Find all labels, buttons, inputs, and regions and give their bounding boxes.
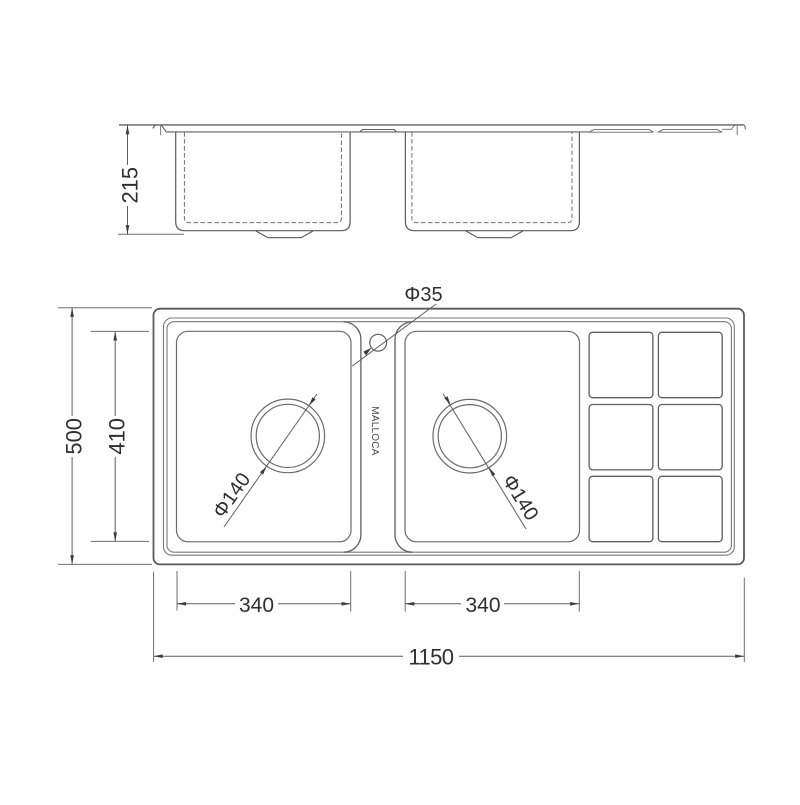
- svg-text:Φ35: Φ35: [404, 284, 442, 306]
- svg-text:340: 340: [465, 594, 500, 617]
- svg-text:215: 215: [117, 167, 142, 204]
- svg-text:MALLOCA: MALLOCA: [369, 406, 380, 455]
- svg-text:1150: 1150: [409, 645, 454, 670]
- svg-text:500: 500: [61, 418, 86, 455]
- svg-text:340: 340: [239, 594, 274, 617]
- svg-text:410: 410: [104, 418, 129, 455]
